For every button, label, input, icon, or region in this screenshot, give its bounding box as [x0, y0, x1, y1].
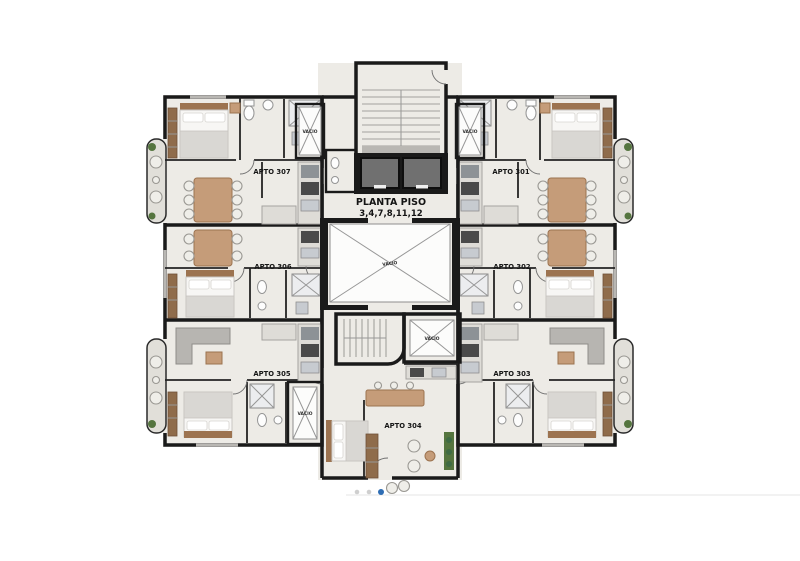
apartment-label-307: APTO 307 [253, 168, 290, 176]
apartment-label-302: APTO 302 [493, 263, 530, 271]
carousel-dot[interactable] [367, 490, 372, 495]
apartment-label-305: APTO 305 [253, 370, 290, 378]
plan-title: PLANTA PISO [356, 197, 426, 208]
apartment-label-301: APTO 301 [492, 168, 529, 176]
right-wing [456, 95, 633, 447]
elevator-cab [403, 158, 441, 188]
void-label: VACIO [424, 336, 439, 342]
elevator-cab [361, 158, 399, 188]
carousel-dot-active[interactable] [378, 489, 384, 495]
carousel-dots [355, 489, 384, 495]
floorplan-page: PLANTA PISO 3,4,7,8,11,12 APTO 307 APTO … [0, 0, 800, 561]
floor-plan-canvas: PLANTA PISO 3,4,7,8,11,12 APTO 307 APTO … [0, 0, 800, 561]
apartment-label-306: APTO 306 [254, 263, 291, 271]
void-label: VACIO [297, 411, 312, 417]
void-label: VACIO [302, 129, 317, 135]
terrace-chairs [387, 481, 410, 494]
apartment-label-303: APTO 303 [493, 370, 530, 378]
carousel-dot[interactable] [355, 490, 360, 495]
elevators [354, 153, 448, 194]
apartment-label-304: APTO 304 [384, 422, 421, 430]
plan-title-floors: 3,4,7,8,11,12 [359, 209, 423, 219]
void-label: VACIO [462, 129, 477, 135]
